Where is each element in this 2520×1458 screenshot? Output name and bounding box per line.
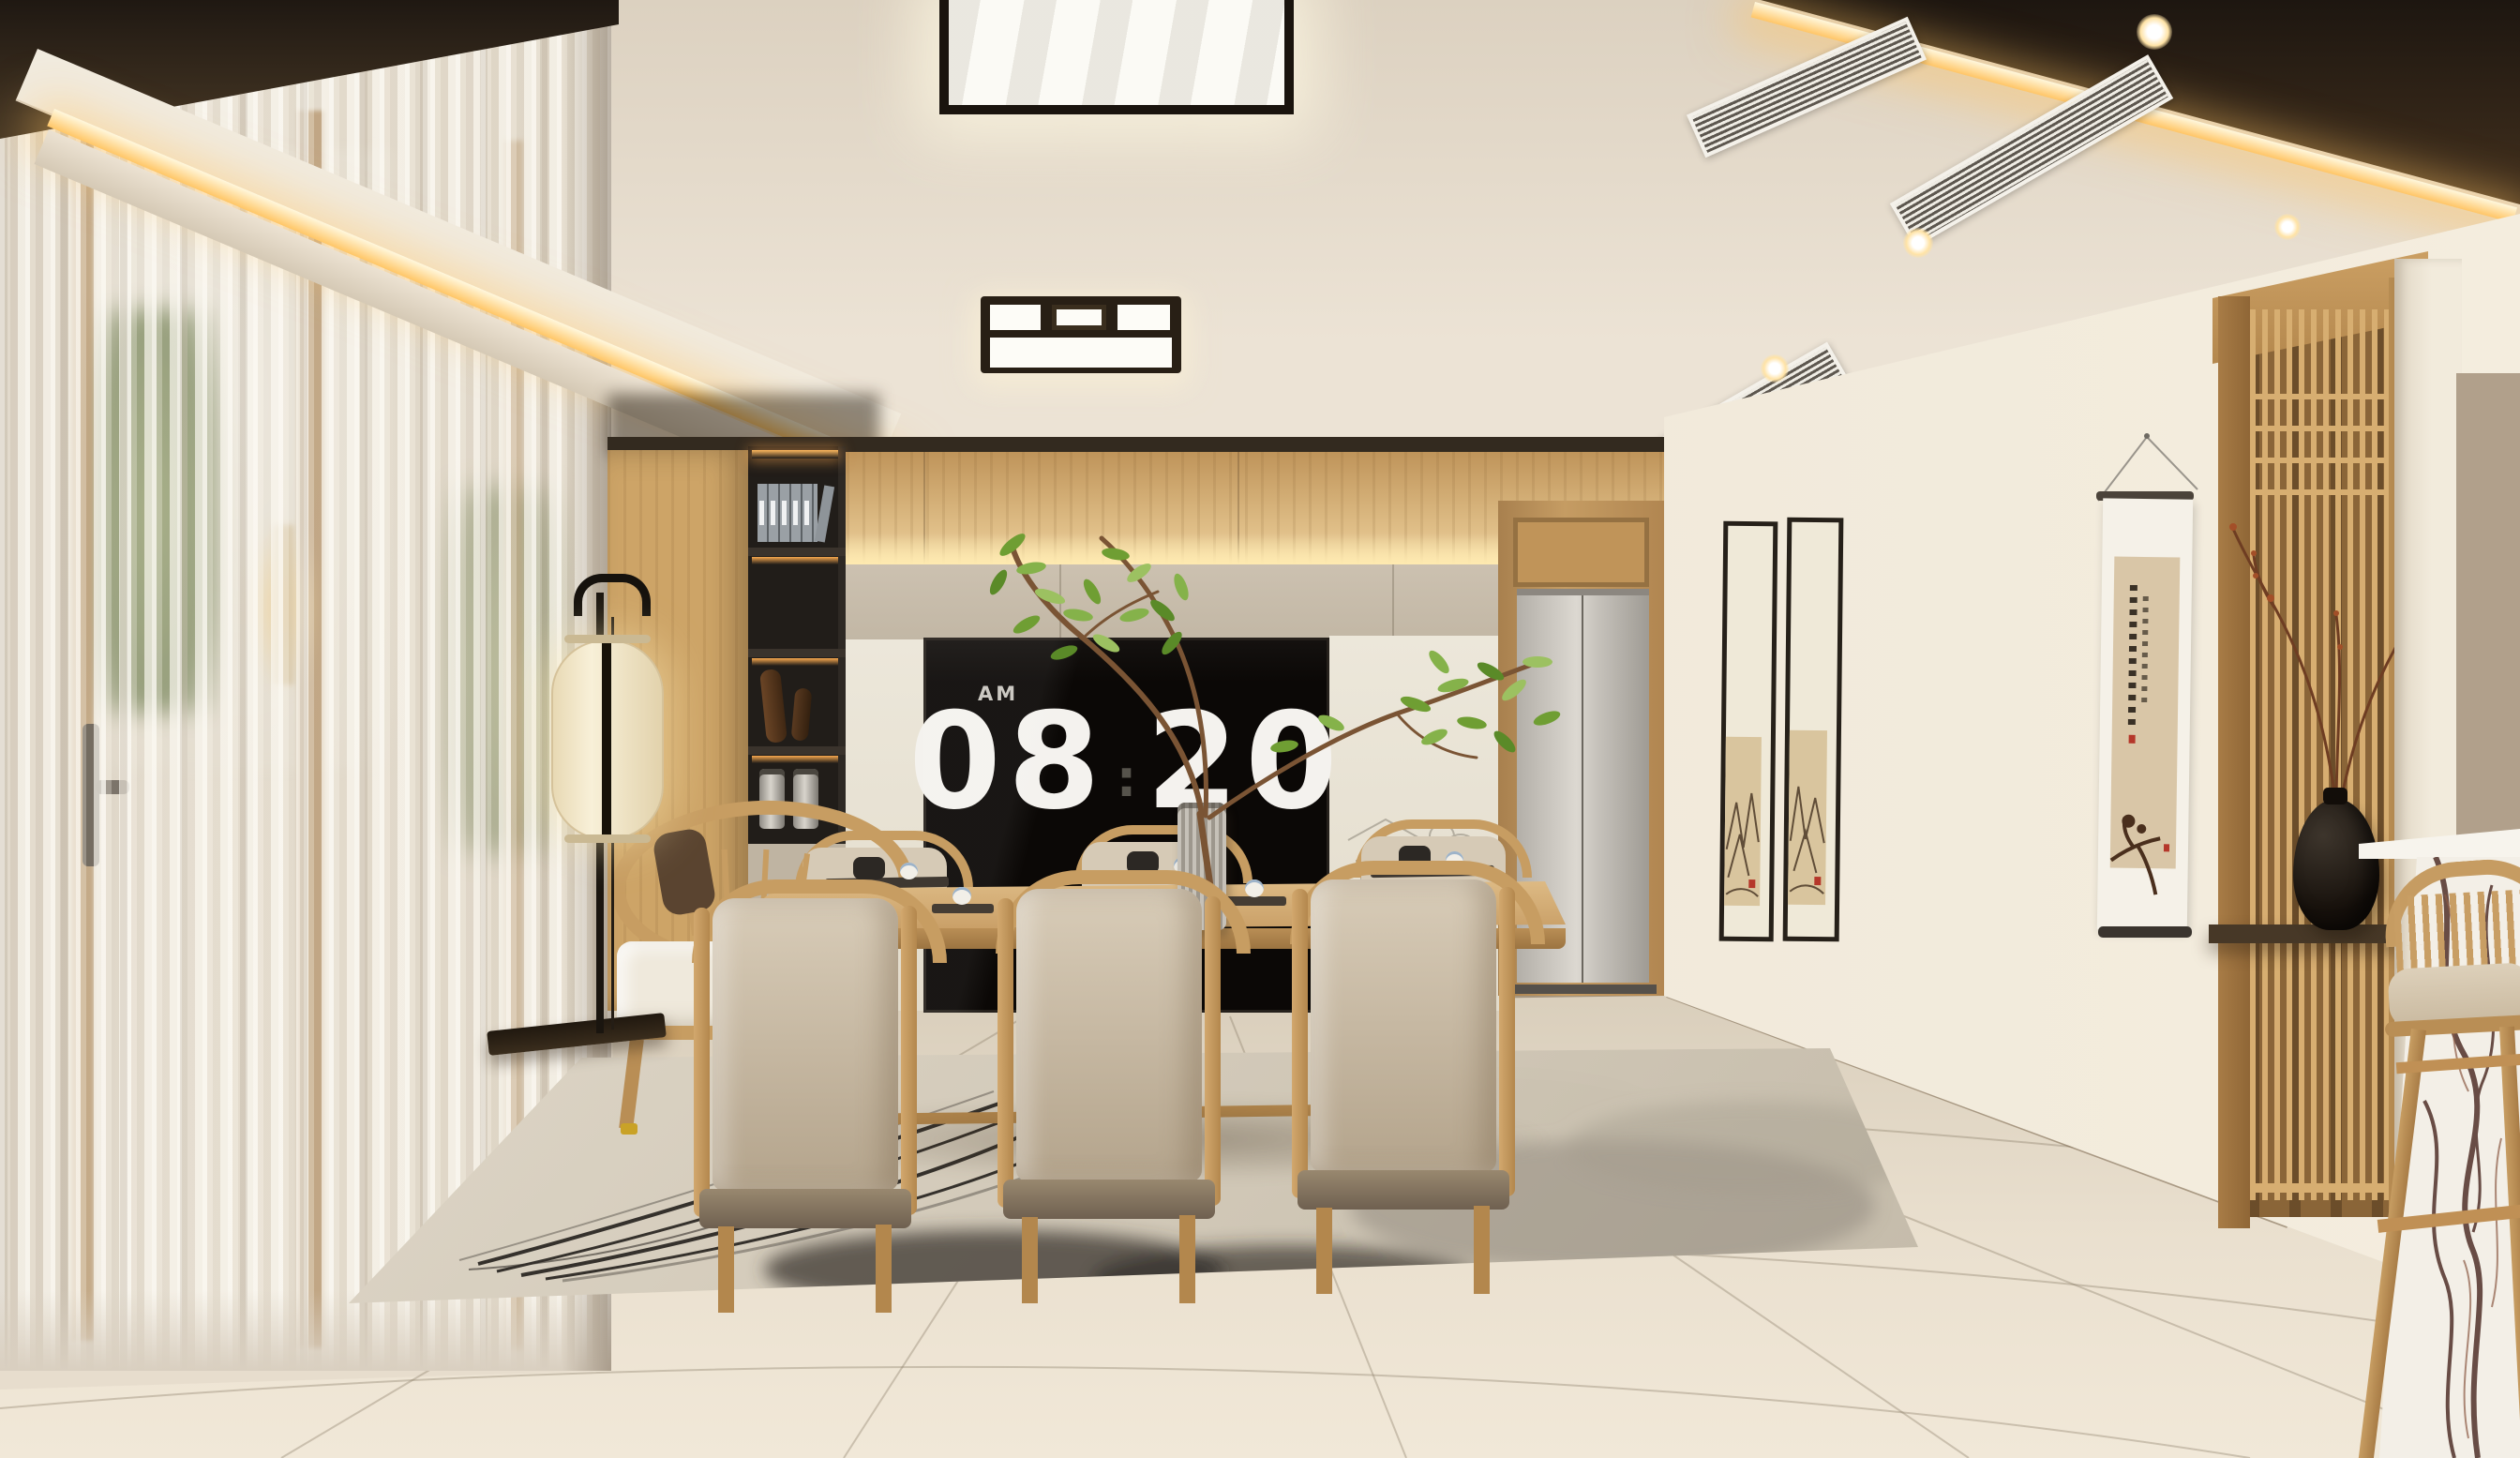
shelf-board <box>748 649 846 657</box>
stool-leg <box>2358 1029 2426 1458</box>
teapot <box>853 857 885 879</box>
ink-mountains <box>1724 737 1762 906</box>
beige-joint <box>1392 564 1394 639</box>
taupe-wall-panel <box>2456 373 2520 851</box>
chair-seat-shadow <box>1003 1180 1215 1219</box>
dining-chair-front <box>684 879 926 1348</box>
chair-seat-shadow <box>1297 1170 1509 1210</box>
chair-post <box>694 908 710 1217</box>
wood-sculpture <box>791 687 813 741</box>
framed-art <box>1719 521 1778 942</box>
chair-post <box>1499 887 1515 1196</box>
elevator-header <box>1513 518 1649 587</box>
light-cell <box>990 305 1041 330</box>
stool-leg <box>2499 1027 2520 1458</box>
downlight <box>2274 214 2301 240</box>
lattice-frame-left <box>2218 296 2250 1228</box>
scroll-rod-bottom <box>2098 926 2192 938</box>
wood-sculpture <box>759 669 787 744</box>
binder-labels <box>759 501 816 525</box>
brass-foot <box>621 1123 637 1135</box>
shelf-glow <box>752 450 838 458</box>
chair-leg <box>1022 1217 1038 1303</box>
lamp-shade <box>551 639 664 840</box>
lamp-shade-rim <box>564 635 651 643</box>
dining-room-render: AM 08 : 20 <box>0 0 2520 1458</box>
shelf-board <box>748 548 846 556</box>
downlight <box>2137 14 2172 50</box>
lattice-grid-rails <box>2250 394 2389 508</box>
chair-post <box>901 906 917 1215</box>
teacup <box>1245 879 1264 897</box>
binders <box>757 484 817 542</box>
teacup <box>952 887 971 905</box>
curtain-bottom-fade <box>0 1290 611 1371</box>
elevator-threshold <box>1509 985 1657 994</box>
downlight <box>1903 228 1933 258</box>
dining-chair-front <box>1282 861 1524 1330</box>
chair-post <box>1205 896 1221 1206</box>
framed-art-ink <box>1724 737 1762 906</box>
elevator-door-track <box>1517 589 1649 595</box>
scroll-body <box>2097 498 2193 930</box>
bookshelf-column <box>748 446 846 844</box>
chair-leg <box>718 1226 734 1313</box>
chair-post <box>1292 889 1308 1198</box>
elevator-door-gap <box>1582 589 1583 983</box>
table-runner <box>932 904 994 913</box>
lamp-shade-spine <box>602 641 611 838</box>
framed-art <box>1783 518 1844 942</box>
dining-chair-front <box>988 870 1230 1339</box>
lamp-hook <box>574 574 651 616</box>
shelf-glow <box>752 658 838 666</box>
binder-leaning <box>815 486 834 543</box>
lamp-shade-rim <box>564 834 651 843</box>
chair-post <box>997 898 1013 1208</box>
ceiling-panel-light-near <box>981 296 1181 373</box>
light-cell-emblem <box>1052 305 1106 330</box>
chair-cushion <box>1311 879 1496 1172</box>
shelf-board <box>748 746 846 755</box>
bar-stool <box>2362 844 2520 1458</box>
framed-art-ink <box>1788 730 1827 905</box>
scroll-seal <box>2129 735 2136 744</box>
ceiling-panel-light-far <box>939 0 1294 114</box>
shelf-glow <box>752 557 838 564</box>
teacup <box>900 863 918 879</box>
chair-leg <box>1179 1215 1195 1303</box>
floor-lamp <box>487 561 684 1067</box>
chair-seat-shadow <box>699 1189 911 1228</box>
downlight <box>1761 354 1789 383</box>
chair-cushion <box>712 898 898 1191</box>
ink-mountains <box>1788 730 1827 905</box>
beige-joint <box>1059 564 1061 639</box>
light-diffuser <box>990 338 1172 368</box>
chair-leg <box>1316 1208 1332 1294</box>
chair-leg <box>1474 1206 1490 1294</box>
chair-leg <box>876 1225 892 1313</box>
shelf-glow <box>752 756 838 763</box>
light-cell <box>1117 305 1170 330</box>
lamp-base <box>487 1013 667 1056</box>
black-vase-neck <box>2323 788 2347 804</box>
chair-cushion <box>1016 889 1202 1181</box>
